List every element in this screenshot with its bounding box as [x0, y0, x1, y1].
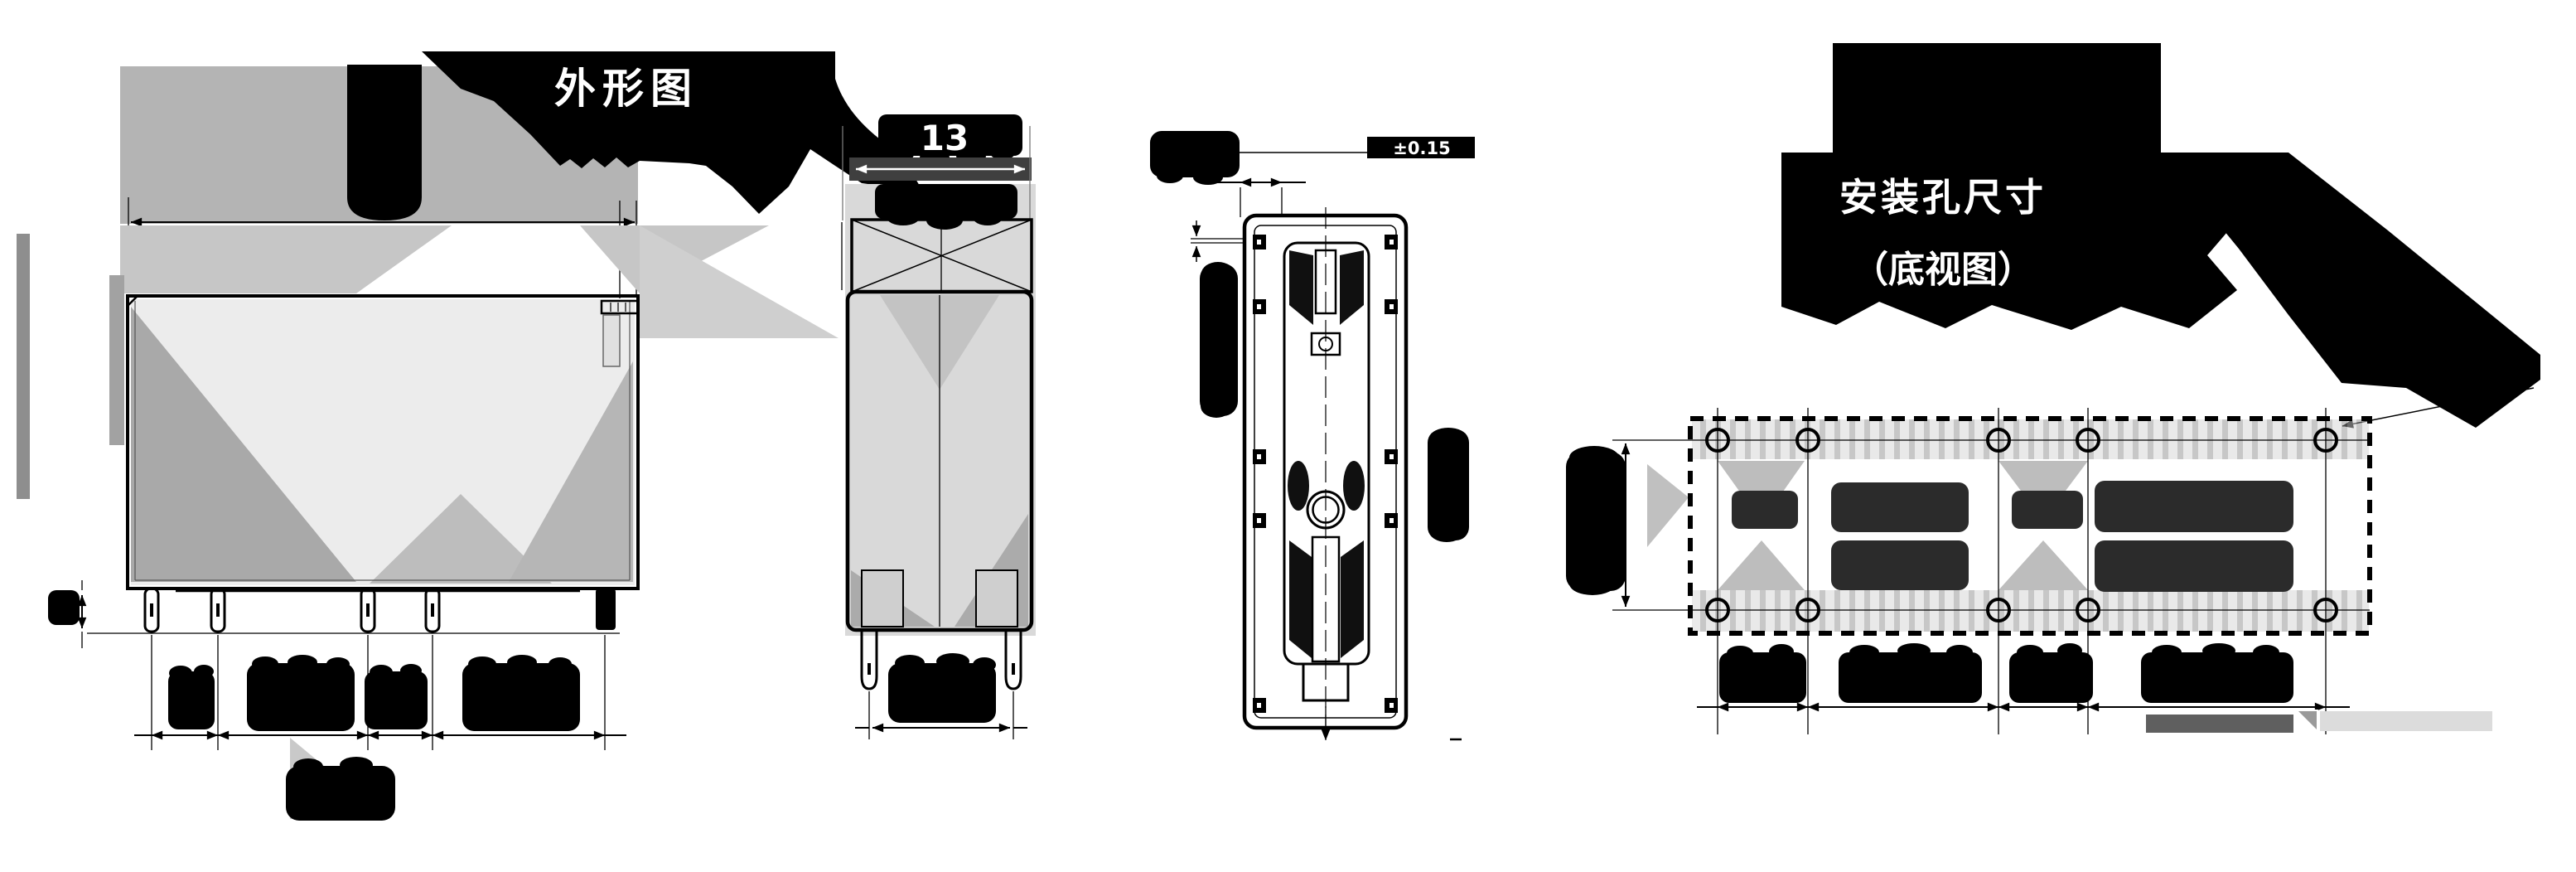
pin-pitch-dimensions — [134, 635, 626, 750]
leader-blob — [2194, 153, 2540, 428]
top-view: ±0.15 — [1150, 131, 1475, 740]
shading-dark — [1288, 461, 1309, 511]
redaction-blob — [888, 663, 996, 723]
shading-dark — [1340, 250, 1364, 325]
overall-dimension-callout — [286, 738, 395, 821]
wide-terminal-pin — [596, 589, 616, 630]
side-slot — [603, 315, 620, 366]
shading-stripes — [1692, 590, 2369, 632]
shading — [1647, 464, 1689, 547]
relay-dimension-drawing: 外形图 — [0, 0, 2576, 872]
shading-stripes — [1692, 419, 2369, 459]
shading-strip — [17, 234, 30, 499]
pin-span-dimension — [855, 653, 1027, 739]
side-width-dim-label: 13 — [921, 118, 969, 158]
row-pitch-dimension — [1566, 443, 1626, 607]
standoff-dimension — [48, 580, 82, 648]
redaction-blob-row — [168, 655, 580, 731]
technical-drawing-canvas: 外形图 — [0, 0, 2576, 872]
shading-dark — [1289, 250, 1313, 325]
front-view: 外形图 — [17, 51, 926, 821]
side-view: 13 — [842, 114, 1036, 739]
bottom-view-subtitle: （底视图） — [1852, 249, 2034, 291]
shading — [1718, 540, 1805, 590]
mini-gap-dimension — [1191, 220, 1245, 262]
bottom-view: 安装孔尺寸 （底视图） — [1566, 43, 2540, 734]
pin-pocket — [976, 570, 1017, 627]
redaction-blob — [1200, 264, 1238, 416]
terminal-pins — [145, 589, 616, 632]
shading-dark — [1343, 461, 1365, 511]
title-blob — [1833, 43, 2161, 154]
redaction-blob — [48, 590, 80, 625]
redaction-blob — [347, 65, 422, 220]
shading — [1998, 540, 2088, 590]
front-view-title: 外形图 — [554, 65, 698, 113]
bottom-view-title: 安装孔尺寸 — [1839, 175, 2047, 220]
shading-dark — [1289, 540, 1312, 658]
pin-pocket — [862, 570, 903, 627]
hole-pitch-dimensions — [1697, 643, 2492, 733]
small-top-dimension — [1216, 182, 1306, 217]
tolerance-dim-label: ±0.15 — [1393, 138, 1450, 158]
shading-strip — [109, 275, 124, 445]
shading — [120, 225, 452, 293]
shading-dark — [1341, 540, 1364, 658]
